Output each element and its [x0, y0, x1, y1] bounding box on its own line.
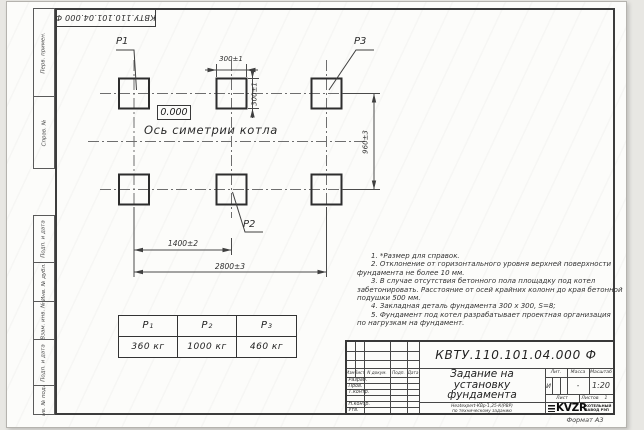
tb-lit-header: Лит. — [545, 368, 567, 377]
side-strip-top: Перв. примен. Справ. № — [33, 8, 55, 169]
load-table-header-p1: Р1 — [119, 316, 178, 337]
kvzr-logo-text: KVZR — [556, 402, 587, 414]
tb-sheets-label: Листов — [580, 394, 600, 402]
boiler-symmetry-axis-label: Ось симетрии котла — [144, 123, 278, 137]
strip-cell-sprav-n: Справ. № — [34, 97, 54, 169]
tb-role-tkontr: Т.контр. — [349, 389, 365, 395]
load-value-p1: 360 кг — [119, 337, 178, 358]
pad-label-p2: Р2 — [243, 219, 255, 230]
load-symbol: Р — [142, 320, 148, 331]
tb-rev-podp: Подп. — [390, 368, 407, 377]
tb-rev-data: Дата — [407, 368, 419, 377]
load-value-p2: 1000 кг — [178, 337, 237, 358]
note-line: 4. Закладная деталь фундамента 300 х 300… — [357, 302, 635, 310]
tb-title: Задание на установку фундамента — [419, 369, 545, 401]
strip-cell-inv-podl: Инв. № подл. — [34, 386, 54, 416]
note-line: по нагрузкам на фундамент. — [357, 319, 635, 327]
pad-label-p1: Р1 — [116, 36, 128, 47]
tb-rev-list: Лист — [355, 368, 364, 377]
note-line: фундамента не более 10 мм. — [357, 269, 635, 277]
tb-line — [407, 342, 408, 413]
tb-line — [347, 360, 419, 361]
tb-mass-header: Масса — [567, 368, 589, 377]
strip-label: Подп. и дата — [41, 220, 47, 257]
tb-rev-docum: N докум. — [364, 368, 390, 377]
tb-line — [552, 377, 553, 394]
load-value-p3: 460 кг — [237, 337, 296, 358]
note-line: забетонировать. Расстояние от осей крайн… — [357, 286, 635, 294]
strip-label: Взам. инв. № — [41, 302, 47, 339]
tb-scale-header: Масштаб — [589, 368, 613, 377]
pad-label-p3: Р3 — [354, 36, 366, 47]
elevation-mark: 0.000 — [157, 105, 191, 120]
note-line: 3. В случае отсутствия бетонного пола пл… — [357, 277, 635, 285]
dim-text-pad-height: 300±1 — [251, 79, 265, 108]
strip-cell-perv-primen: Перв. примен. — [34, 9, 54, 97]
load-subscript: 2 — [208, 322, 212, 330]
rotated-doc-number: КВТУ.110.101.04.000 Ф — [55, 13, 156, 22]
strip-label: Подп. и дата — [41, 344, 47, 381]
tb-line — [390, 342, 391, 413]
tb-rev-izm: Изм. — [347, 368, 355, 377]
strip-label: Справ. № — [41, 120, 47, 147]
tb-subtitle-line: по техническому заданию — [452, 410, 512, 413]
strip-cell-inv-dubl: Инв. № дубл. — [34, 263, 54, 302]
tb-lit-value: И — [545, 377, 552, 394]
load-subscript: 1 — [149, 322, 153, 330]
load-symbol: Р — [201, 320, 207, 331]
note-line: подушки 500 мм. — [357, 294, 635, 302]
load-symbol: Р — [261, 320, 267, 331]
strip-cell-vzam-inv: Взам. инв. № — [34, 302, 54, 340]
format-label: Формат А3 — [553, 416, 617, 424]
tb-sheets-value: 1 — [600, 394, 612, 402]
dim-text-col-spacing: 1400±2 — [153, 239, 213, 248]
load-table-header-p3: Р3 — [237, 316, 296, 337]
strip-label: Инв. № подл. — [41, 386, 47, 416]
strip-cell-podp-data-1: Подп. и дата — [34, 216, 54, 263]
kvzr-caption-line: ЗАВОД РЭП — [585, 408, 611, 412]
tb-subtitle: Котел водогрейный Heatexpert-КВр-1,25-К(… — [419, 402, 545, 413]
rotated-doc-number-box: КВТУ.110.101.04.000 Ф — [55, 8, 156, 27]
notes-block: 1. *Размер для справок. 2. Отклонение от… — [357, 252, 635, 328]
load-table-header-p2: Р2 — [178, 316, 237, 337]
tb-line — [347, 395, 419, 396]
dim-text-total-span: 2800±3 — [200, 262, 260, 271]
drawing-sheet: Перв. примен. Справ. № Подп. и дата Инв.… — [0, 0, 644, 430]
tb-scale-value: 1:20 — [589, 377, 613, 394]
kvzr-logo-bars-icon — [548, 405, 555, 413]
dim-text-pad-width: 300±1 — [206, 55, 256, 63]
load-subscript: 3 — [268, 322, 272, 330]
side-strip-bottom: Подп. и дата Инв. № дубл. Взам. инв. № П… — [33, 215, 55, 415]
strip-label: Перв. примен. — [41, 32, 47, 73]
strip-cell-podp-data-2: Подп. и дата — [34, 340, 54, 386]
strip-label: Инв. № дубл. — [41, 263, 47, 301]
tb-line — [560, 377, 561, 394]
dim-text-row-spacing: 960±3 — [362, 127, 376, 156]
tb-role-utv: Утв. — [349, 407, 365, 413]
tb-line — [347, 351, 419, 352]
kvzr-logo-caption: КОТЕЛЬНЫЙ ЗАВОД РЭП — [585, 404, 611, 413]
tb-mass-value: - — [567, 377, 589, 394]
tb-title-line: фундамента — [447, 390, 517, 401]
tb-doc-number: КВТУ.110.101.04.000 Ф — [419, 342, 613, 368]
tb-sheet-label: Лист — [545, 394, 579, 402]
load-table: Р1 Р2 Р3 360 кг 1000 кг 460 кг — [118, 315, 297, 358]
note-line: 2. Отклонение от горизонтального уровня … — [357, 260, 635, 268]
note-line: 1. *Размер для справок. — [357, 252, 635, 260]
title-block: КВТУ.110.101.04.000 Ф Изм. Лист N докум.… — [345, 340, 615, 415]
note-line: 5. Фундамент под котел разрабатывает про… — [357, 311, 635, 319]
